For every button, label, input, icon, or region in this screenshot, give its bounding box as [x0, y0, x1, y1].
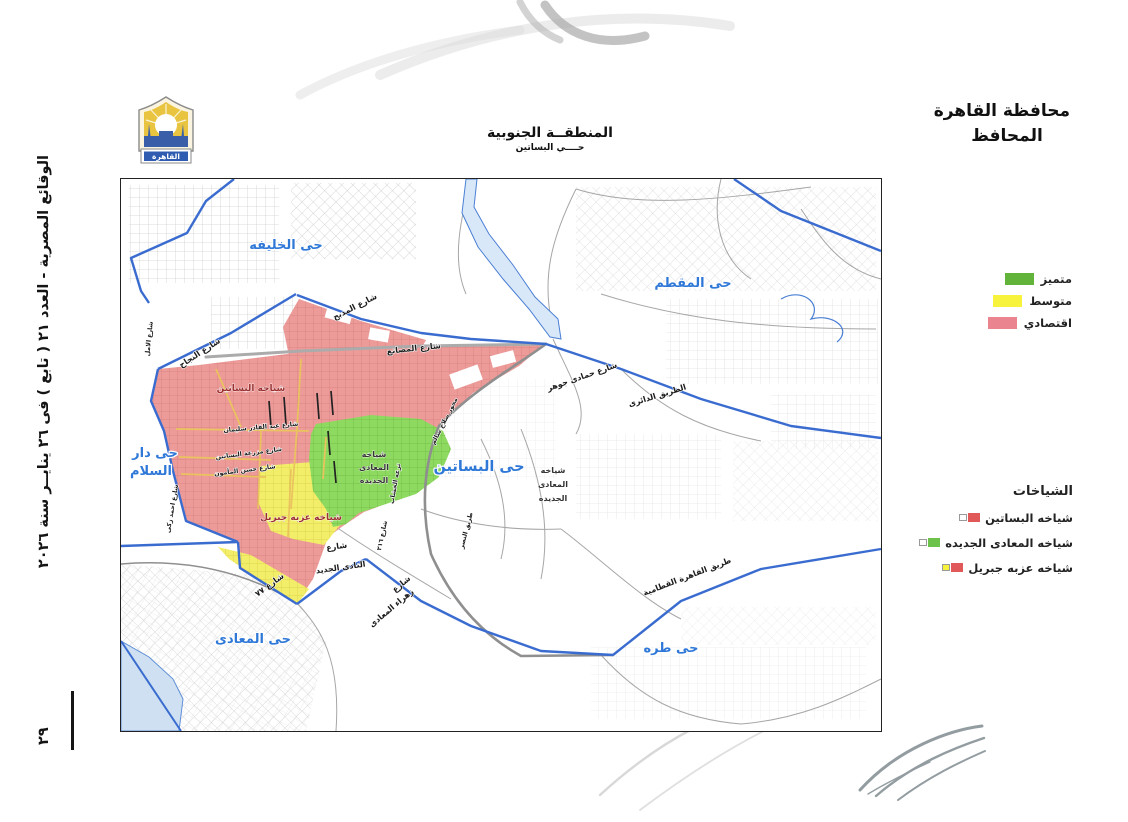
- zone-label-maadi-new-line3: الجديده: [360, 476, 389, 485]
- legend-row-sheyakha-ezbet-gebril: شياخه عزبه جبريل: [885, 555, 1073, 580]
- legend-row-medium: متوسط: [940, 290, 1072, 312]
- map-frame: شياخه البساتين شياخه عزبه جبريل شياخه ال…: [120, 178, 882, 732]
- sheyakhat-legend: الشياخات شياخه البساتين شياخه المعادى ال…: [885, 484, 1073, 580]
- logo-text: القاهرة: [152, 152, 180, 161]
- quality-legend: متميز متوسط اقتصادي: [940, 268, 1072, 334]
- legend-row-economic: اقتصادي: [940, 312, 1072, 334]
- zone-label-maadi-new-east-line3: الجديده: [539, 494, 568, 503]
- sheyakha-basatin-swatch-icon: [959, 513, 980, 522]
- swatch-color-1: [928, 538, 940, 547]
- district-label-maadi: حى المعادى: [215, 632, 291, 647]
- swatch-color-2: [942, 564, 950, 571]
- swatch-color-2: [919, 539, 927, 546]
- page-number: ٢٩: [36, 727, 52, 745]
- swatch-color-2: [959, 514, 967, 521]
- sheyakhat-legend-title: الشياخات: [940, 484, 1073, 499]
- governor-subtitle: المحافظ: [930, 124, 1070, 149]
- swatch-color-1: [951, 563, 963, 572]
- zone-label-maadi-new-line1: شياخه: [362, 450, 387, 459]
- map-title-block: المنطقــة الجنوبية حــــي البساتين: [400, 125, 700, 153]
- district-label-dar-el-salam-line2: السلام: [130, 464, 172, 479]
- map-subtitle: حــــي البساتين: [400, 143, 700, 153]
- zone-label-maadi-new-line2: المعادى: [359, 463, 389, 472]
- sheyakha-maadi-new-swatch-icon: [919, 538, 940, 547]
- district-label-tora: حى طره: [643, 641, 698, 656]
- district-label-moqattam: حى المقطم: [654, 276, 731, 291]
- swatch-color-1: [968, 513, 980, 522]
- legend-row-sheyakha-maadi-new: شياخه المعادى الجديده: [885, 530, 1073, 555]
- map-title: المنطقــة الجنوبية: [400, 125, 700, 141]
- legend-label: شياخه المعادى الجديده: [945, 536, 1073, 550]
- cairo-governorate-logo: القاهرة: [127, 96, 205, 168]
- legend-row-distinguished: متميز: [940, 268, 1072, 290]
- sidebar-rule: [71, 691, 74, 750]
- gazette-issue-line: الوقائع المصرية - العدد ٢١ ( تابع ) فى ٢…: [36, 155, 52, 568]
- district-label-basatin: حى البساتين: [433, 459, 524, 475]
- governorate-title: محافظة القاهرة: [930, 99, 1070, 124]
- legend-label: اقتصادي: [1024, 316, 1072, 330]
- zone-label-ezbet-gebril: شياخه عزبه جبريل: [260, 513, 342, 523]
- sheyakha-ezbet-gebril-swatch-icon: [942, 563, 963, 572]
- governorate-header: محافظة القاهرة المحافظ: [930, 99, 1070, 149]
- green-swatch-icon: [1005, 273, 1034, 285]
- district-label-khalifa: حى الخليفه: [249, 238, 323, 253]
- pink-swatch-icon: [988, 317, 1017, 329]
- gazette-sidebar: الوقائع المصرية - العدد ٢١ ( تابع ) فى ٢…: [30, 155, 58, 745]
- district-map: شياخه البساتين شياخه عزبه جبريل شياخه ال…: [121, 179, 881, 731]
- gazette-page: { "sidebar": { "issue_line": "الوقائع ال…: [0, 0, 1128, 822]
- legend-label: شياخه عزبه جبريل: [968, 561, 1073, 575]
- district-label-dar-el-salam-line1: حى دار: [131, 446, 178, 461]
- legend-label: شياخه البساتين: [985, 511, 1073, 525]
- legend-label: متميز: [1041, 272, 1072, 286]
- zone-label-basatin: شياخه البساتين: [217, 384, 286, 394]
- yellow-swatch-icon: [993, 295, 1022, 307]
- legend-label: متوسط: [1029, 294, 1072, 308]
- zone-label-maadi-new-east-line2: المعادى: [538, 480, 568, 489]
- zone-label-maadi-new-east-line1: شياخه: [541, 466, 566, 475]
- legend-row-sheyakha-basatin: شياخه البساتين: [885, 505, 1073, 530]
